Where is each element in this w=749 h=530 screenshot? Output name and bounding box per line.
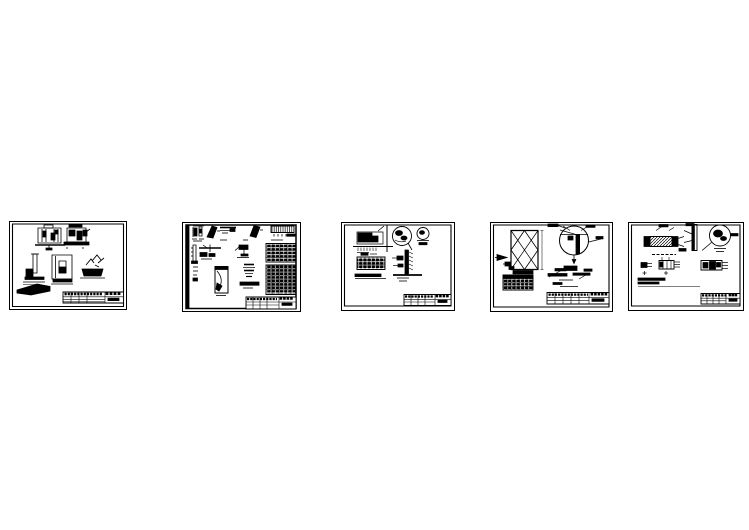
schedule-table	[503, 275, 533, 290]
detail-block-cells	[701, 261, 728, 271]
detail-figure-mid-center	[51, 255, 73, 284]
detail-figure-wedge	[17, 284, 50, 295]
detail-circle-views	[393, 227, 430, 251]
detail-vertical-bar	[684, 224, 697, 251]
detail-figure-plant	[80, 255, 105, 278]
circle-detail	[548, 224, 603, 264]
cad-sheet-5[interactable]	[628, 222, 744, 311]
title-block	[701, 294, 740, 305]
drawing-canvas	[0, 0, 749, 530]
notes-text-lines	[638, 278, 700, 287]
detail-figure-mid-left	[23, 254, 45, 285]
detail-figure-top-right	[64, 224, 90, 249]
sill-assembly	[548, 266, 592, 287]
cad-sheet-4[interactable]	[490, 222, 613, 312]
detail-figure-top-left	[35, 225, 65, 250]
detail-row3	[193, 265, 296, 296]
cad-sheet-2[interactable]	[182, 222, 301, 312]
title-block	[246, 297, 296, 309]
door-elevation	[495, 231, 544, 274]
detail-fitting-flanged	[659, 257, 680, 275]
detail-post-section	[392, 250, 422, 281]
detail-row1	[192, 226, 295, 242]
detail-machine-section	[353, 225, 393, 253]
detail-fitting-small	[641, 263, 652, 276]
title-block	[404, 295, 451, 306]
detail-circle	[702, 225, 738, 252]
detail-bottom-bar	[355, 274, 386, 279]
cad-sheet-1[interactable]	[9, 221, 127, 310]
title-block	[547, 293, 609, 305]
detail-hatched-block	[357, 253, 385, 270]
detail-row2	[191, 244, 296, 264]
detail-hatched-assembly	[644, 225, 686, 255]
title-block	[63, 292, 124, 303]
cad-sheet-3[interactable]	[341, 222, 455, 311]
